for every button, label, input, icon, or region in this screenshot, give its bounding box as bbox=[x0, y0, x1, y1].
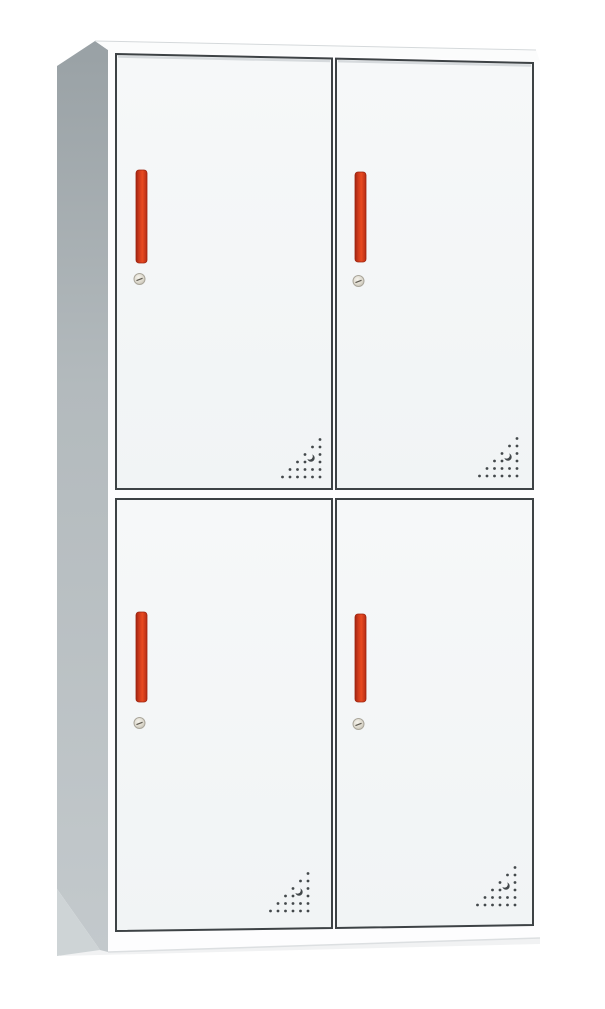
vent-hole bbox=[311, 468, 314, 471]
vent-hole bbox=[307, 880, 310, 883]
vent-hole bbox=[499, 896, 502, 899]
vent-hole bbox=[514, 881, 517, 884]
vent-hole bbox=[304, 453, 307, 456]
door-panel bbox=[116, 54, 332, 489]
vent-hole bbox=[284, 910, 287, 913]
vent-hole bbox=[319, 446, 322, 449]
vent-hole bbox=[284, 895, 287, 898]
vent-hole bbox=[499, 889, 502, 892]
vent-hole bbox=[493, 475, 496, 478]
vent-hole bbox=[506, 896, 509, 899]
door-panel bbox=[116, 499, 332, 931]
vent-hole bbox=[514, 866, 517, 869]
door-panel bbox=[336, 499, 533, 928]
door-handle bbox=[136, 170, 147, 263]
vent-hole bbox=[506, 874, 509, 877]
vent-hole bbox=[484, 904, 487, 907]
vent-crescent-cover bbox=[501, 881, 508, 888]
vent-hole bbox=[299, 902, 302, 905]
vent-hole bbox=[292, 910, 295, 913]
vent-hole bbox=[514, 874, 517, 877]
locker-cabinet-illustration bbox=[0, 0, 605, 1009]
product-photo-locker bbox=[0, 0, 605, 1009]
vent-hole bbox=[289, 468, 292, 471]
vent-hole bbox=[319, 461, 322, 464]
vent-hole bbox=[319, 438, 322, 441]
vent-hole bbox=[289, 476, 292, 479]
vent-hole bbox=[516, 475, 519, 478]
locker-door-top-right bbox=[336, 59, 533, 489]
door-handle bbox=[355, 172, 366, 262]
vent-hole bbox=[269, 910, 272, 913]
vent-hole bbox=[299, 880, 302, 883]
vent-hole bbox=[508, 475, 511, 478]
vent-hole bbox=[514, 904, 517, 907]
door-handle bbox=[136, 612, 147, 702]
vent-hole bbox=[516, 445, 519, 448]
vent-hole bbox=[516, 460, 519, 463]
door-panel bbox=[336, 59, 533, 489]
vent-hole bbox=[307, 872, 310, 875]
vent-hole bbox=[484, 896, 487, 899]
vent-hole bbox=[493, 467, 496, 470]
locker-door-bottom-right bbox=[336, 499, 533, 928]
vent-crescent-cover bbox=[294, 887, 301, 894]
vent-hole bbox=[311, 446, 314, 449]
locker-door-top-left bbox=[116, 54, 332, 489]
vent-hole bbox=[499, 881, 502, 884]
vent-hole bbox=[296, 468, 299, 471]
vent-hole bbox=[501, 475, 504, 478]
vent-hole bbox=[304, 468, 307, 471]
vent-hole bbox=[501, 460, 504, 463]
vent-hole bbox=[491, 889, 494, 892]
vent-hole bbox=[501, 452, 504, 455]
vent-hole bbox=[478, 475, 481, 478]
vent-hole bbox=[319, 468, 322, 471]
vent-hole bbox=[307, 887, 310, 890]
vent-hole bbox=[292, 887, 295, 890]
vent-hole bbox=[493, 460, 496, 463]
vent-crescent-cover bbox=[503, 452, 510, 459]
vent-hole bbox=[319, 476, 322, 479]
vent-hole bbox=[296, 476, 299, 479]
vent-hole bbox=[277, 910, 280, 913]
vent-hole bbox=[516, 467, 519, 470]
vent-hole bbox=[491, 904, 494, 907]
vent-hole bbox=[304, 461, 307, 464]
vent-hole bbox=[281, 476, 284, 479]
vent-hole bbox=[296, 461, 299, 464]
vent-hole bbox=[508, 467, 511, 470]
vent-hole bbox=[284, 902, 287, 905]
vent-hole bbox=[292, 895, 295, 898]
vent-hole bbox=[499, 904, 502, 907]
door-handle bbox=[355, 614, 366, 702]
vent-hole bbox=[516, 437, 519, 440]
vent-hole bbox=[516, 452, 519, 455]
vent-hole bbox=[277, 902, 280, 905]
vent-hole bbox=[307, 902, 310, 905]
vent-hole bbox=[319, 453, 322, 456]
vent-hole bbox=[292, 902, 295, 905]
locker-door-bottom-left bbox=[116, 499, 332, 931]
vent-hole bbox=[506, 904, 509, 907]
vent-hole bbox=[501, 467, 504, 470]
vent-hole bbox=[491, 896, 494, 899]
vent-hole bbox=[476, 904, 479, 907]
vent-hole bbox=[486, 467, 489, 470]
vent-hole bbox=[307, 910, 310, 913]
vent-hole bbox=[311, 476, 314, 479]
vent-hole bbox=[508, 445, 511, 448]
vent-hole bbox=[514, 896, 517, 899]
vent-crescent-cover bbox=[306, 453, 313, 460]
vent-hole bbox=[299, 910, 302, 913]
vent-hole bbox=[514, 889, 517, 892]
vent-hole bbox=[486, 475, 489, 478]
vent-hole bbox=[304, 476, 307, 479]
vent-hole bbox=[307, 895, 310, 898]
cabinet-side-panel bbox=[57, 41, 108, 952]
